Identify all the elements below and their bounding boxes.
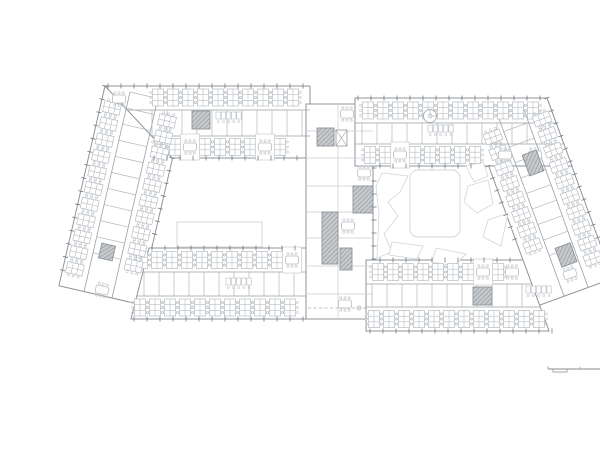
stair-core <box>98 243 115 261</box>
meeting-table <box>341 107 354 122</box>
meeting-table <box>113 92 126 107</box>
meeting-table <box>339 297 352 312</box>
meeting-table <box>474 259 493 285</box>
stair-core <box>317 128 334 146</box>
floor-plan <box>40 16 600 440</box>
stair-core <box>192 111 210 129</box>
floor-plan-svg <box>40 16 600 440</box>
courtyard-lawn <box>410 170 460 237</box>
meeting-table <box>358 166 371 181</box>
stair-core <box>473 287 492 305</box>
stair-core <box>340 248 352 270</box>
meeting-table <box>506 265 519 280</box>
meeting-table <box>499 148 512 163</box>
stair-core <box>322 212 338 264</box>
meeting-table <box>181 134 200 160</box>
meeting-table <box>342 219 355 234</box>
stair-core <box>353 186 373 213</box>
spiral-stair <box>424 110 437 123</box>
lift-shaft <box>336 130 347 146</box>
meeting-table <box>283 247 302 273</box>
